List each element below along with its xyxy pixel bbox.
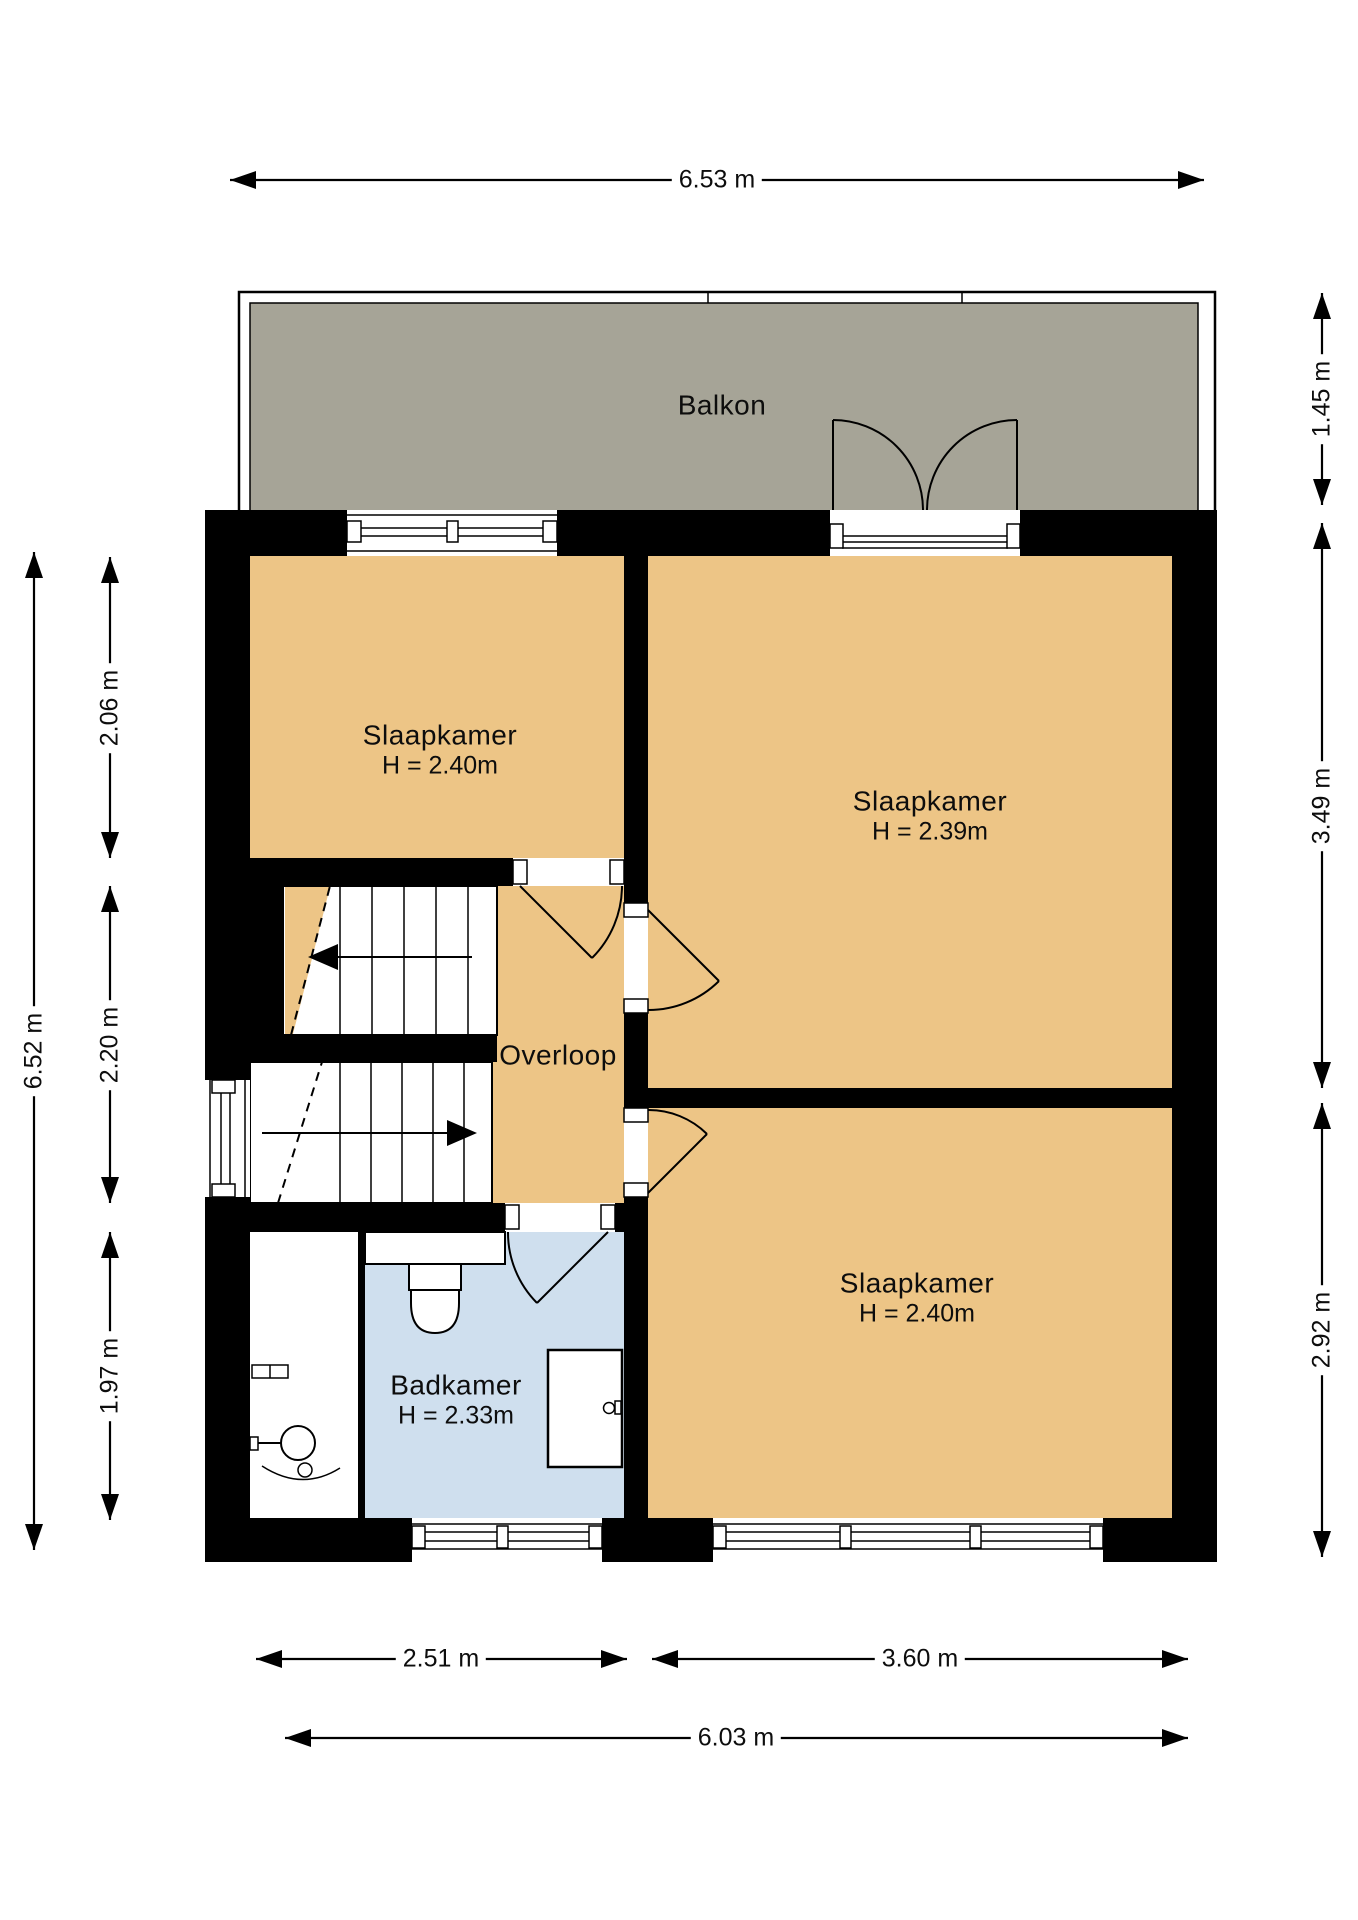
dim-landing-depth: 2.20 m: [95, 1000, 125, 1090]
dim-bedroom3-depth: 2.92 m: [1307, 1285, 1337, 1375]
room-height: H = 2.40m: [363, 752, 517, 782]
bedroom1-window: [347, 510, 557, 556]
bathroom-window: [412, 1518, 602, 1562]
room-name: Balkon: [678, 388, 767, 421]
dim-left-total: 6.52 m: [19, 1006, 49, 1096]
room-name: Slaapkamer: [853, 785, 1007, 818]
dim-bedroom2-depth: 3.49 m: [1307, 761, 1337, 851]
room-height: H = 2.40m: [840, 1300, 994, 1330]
dim-bedroom1-depth: 2.06 m: [95, 663, 125, 753]
floorplan-drawing: [0, 0, 1358, 1920]
bedroom3-window: [713, 1518, 1103, 1562]
room-name: Slaapkamer: [840, 1267, 994, 1300]
dim-bathroom-depth: 1.97 m: [95, 1331, 125, 1421]
room-label-slaapkamer-1: Slaapkamer H = 2.40m: [363, 719, 517, 782]
room-label-slaapkamer-3: Slaapkamer H = 2.40m: [840, 1267, 994, 1330]
dim-top-width: 6.53 m: [672, 165, 762, 195]
bedroom1-floor: [250, 556, 624, 858]
room-height: H = 2.33m: [390, 1402, 522, 1432]
room-label-slaapkamer-2: Slaapkamer H = 2.39m: [853, 785, 1007, 848]
dim-bottom-total: 6.03 m: [691, 1723, 781, 1753]
room-label-badkamer: Badkamer H = 2.33m: [390, 1369, 522, 1432]
shelf: [252, 1365, 288, 1378]
room-height: H = 2.39m: [853, 818, 1007, 848]
dim-balcony-depth: 1.45 m: [1307, 354, 1337, 444]
room-name: Badkamer: [390, 1369, 522, 1402]
dim-bottom-left-width: 2.51 m: [396, 1644, 486, 1674]
shower-tray: [548, 1350, 622, 1467]
room-label-overloop: Overloop: [499, 1038, 617, 1071]
stair-window: [205, 1080, 250, 1197]
toilet: [409, 1264, 461, 1333]
room-name: Slaapkamer: [363, 719, 517, 752]
vanity-unit: [365, 1232, 505, 1264]
floorplan-canvas: Balkon Slaapkamer H = 2.40m Slaapkamer H…: [0, 0, 1358, 1920]
room-name: Overloop: [499, 1038, 617, 1071]
room-label-balkon: Balkon: [678, 388, 767, 421]
dim-bottom-right-width: 3.60 m: [875, 1644, 965, 1674]
